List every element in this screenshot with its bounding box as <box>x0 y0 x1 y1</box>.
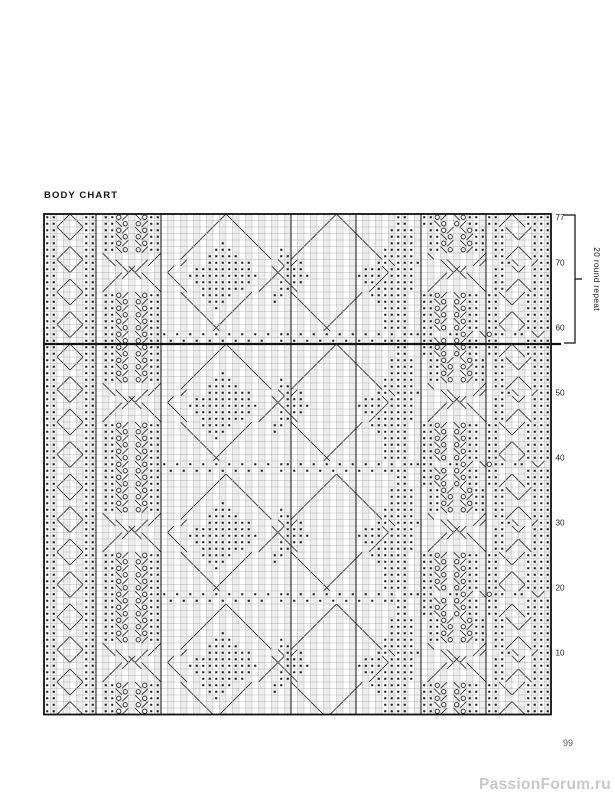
column-shade <box>194 214 201 715</box>
page-number: 99 <box>563 738 573 748</box>
row-number-label: 10 <box>556 649 566 658</box>
column-shade <box>272 214 279 715</box>
book-page: BODY CHART 777060504030201020 round repe… <box>0 0 615 800</box>
row-number-label: 70 <box>556 259 566 268</box>
row-number-label: 50 <box>556 389 566 398</box>
body-chart-grid: 777060504030201020 round repeat <box>0 0 615 800</box>
column-shade <box>129 214 136 715</box>
row-number-labels: 7770605040302010 <box>556 213 566 658</box>
row-number-label: 60 <box>556 324 566 333</box>
watermark-text: PassionForum.ru <box>479 776 611 794</box>
row-number-label: 20 <box>556 584 566 593</box>
repeat-bracket <box>564 215 582 343</box>
column-shade <box>246 214 253 715</box>
row-number-label: 40 <box>556 454 566 463</box>
column-shade <box>168 214 175 715</box>
row-number-label: 30 <box>556 519 566 528</box>
row-number-label: 77 <box>556 213 566 222</box>
repeat-label: 20 round repeat <box>592 247 602 311</box>
